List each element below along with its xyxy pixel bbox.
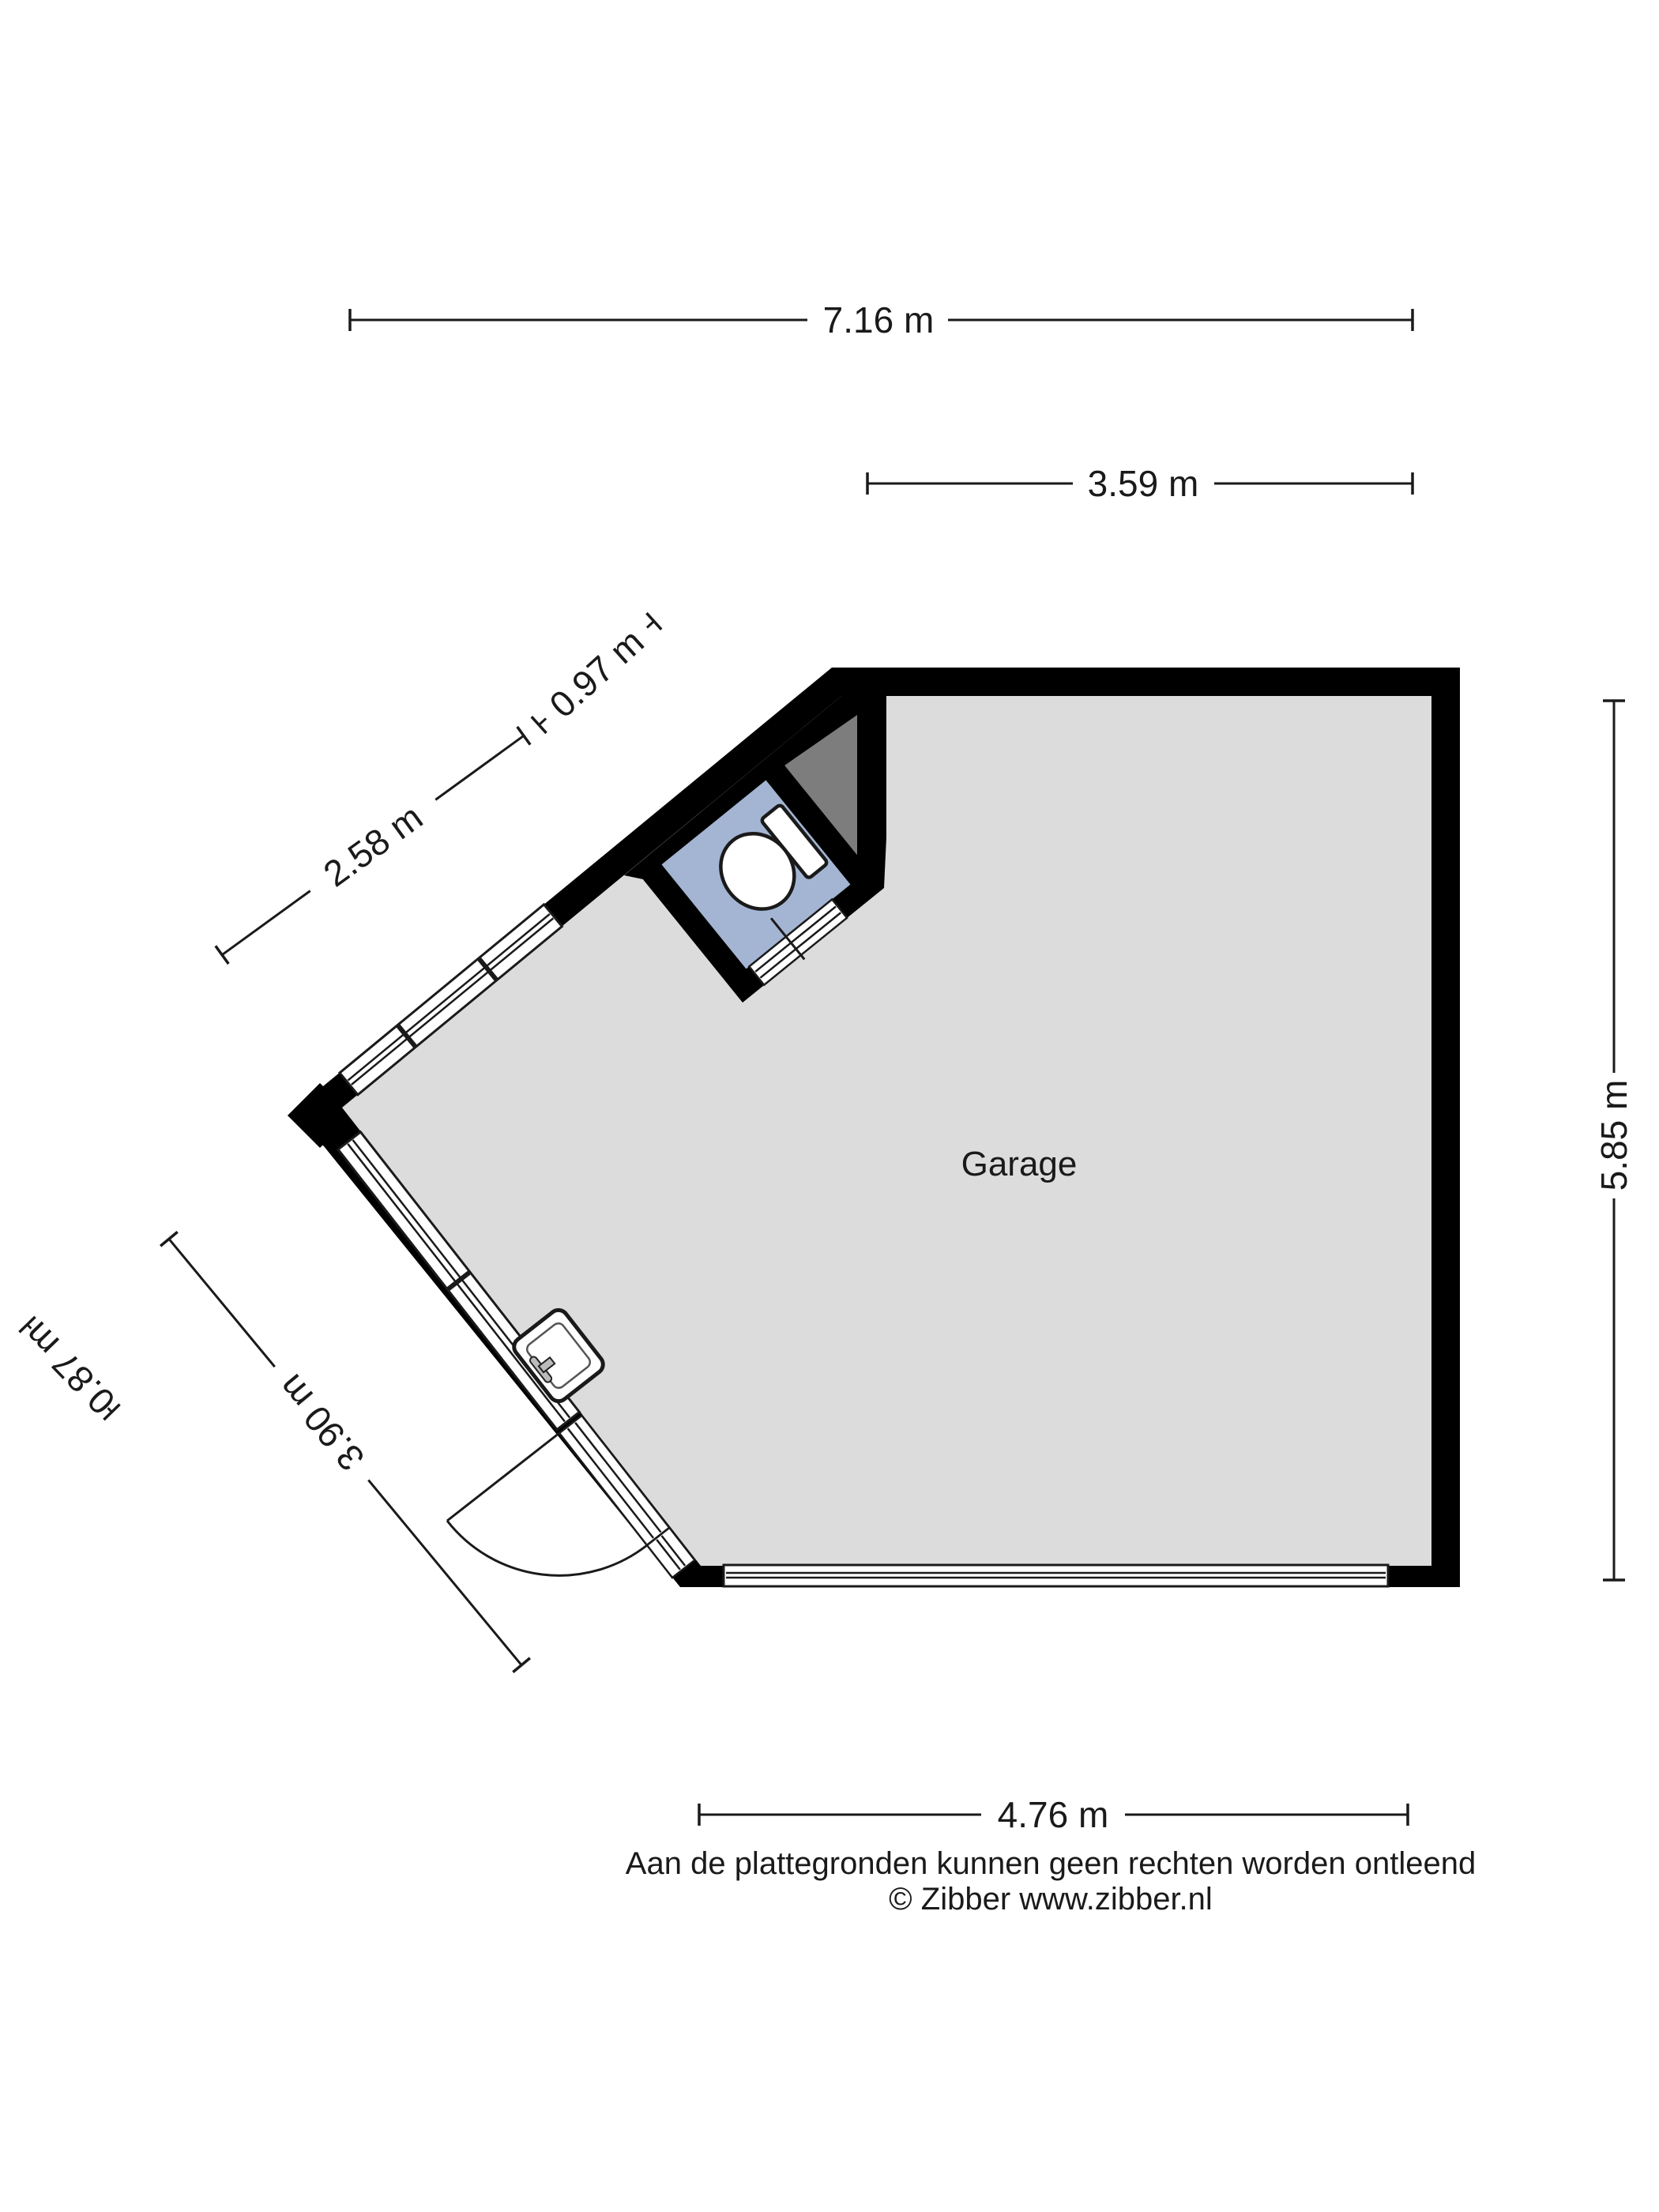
floorplan-canvas: 7.16 m 3.59 m 2.58 m 0.97 m 5.85 m [0,0,1659,2212]
footer-disclaimer: Aan de plattegronden kunnen geen rechten… [626,1846,1476,1881]
room-label-garage: Garage [961,1145,1078,1183]
dimension-right-height: 5.85 m [1593,701,1635,1580]
dimension-bottom-width: 4.76 m [699,1794,1408,1835]
dimension-label-lower-diagonal: 3.90 m [270,1367,373,1479]
dimension-label-right-height: 5.85 m [1593,1080,1635,1191]
dimension-top-width: 7.16 m [350,299,1413,340]
dimension-label-upper-diagonal: 2.58 m [316,796,430,895]
footer-credit: © Zibber www.zibber.nl [889,1882,1213,1917]
garage-door-window [724,1565,1388,1586]
dimension-upper-diagonal-small: 0.97 m [525,606,668,740]
dimension-lower-diagonal-small: 0.87 m [13,1311,126,1427]
dimension-label-top-partial: 3.59 m [1088,463,1199,504]
garage-floor [342,696,1431,1566]
dimension-label-top-width: 7.16 m [823,299,935,340]
dimension-top-partial-width: 3.59 m [867,463,1413,504]
dimension-label-lower-diagonal-small: 0.87 m [16,1314,122,1422]
floorplan-page: 7.16 m 3.59 m 2.58 m 0.97 m 5.85 m [0,0,1659,2212]
dimension-upper-diagonal: 2.58 m [210,719,536,972]
dimension-label-bottom-width: 4.76 m [998,1794,1109,1835]
dimension-label-upper-diagonal-small: 0.97 m [541,621,651,726]
